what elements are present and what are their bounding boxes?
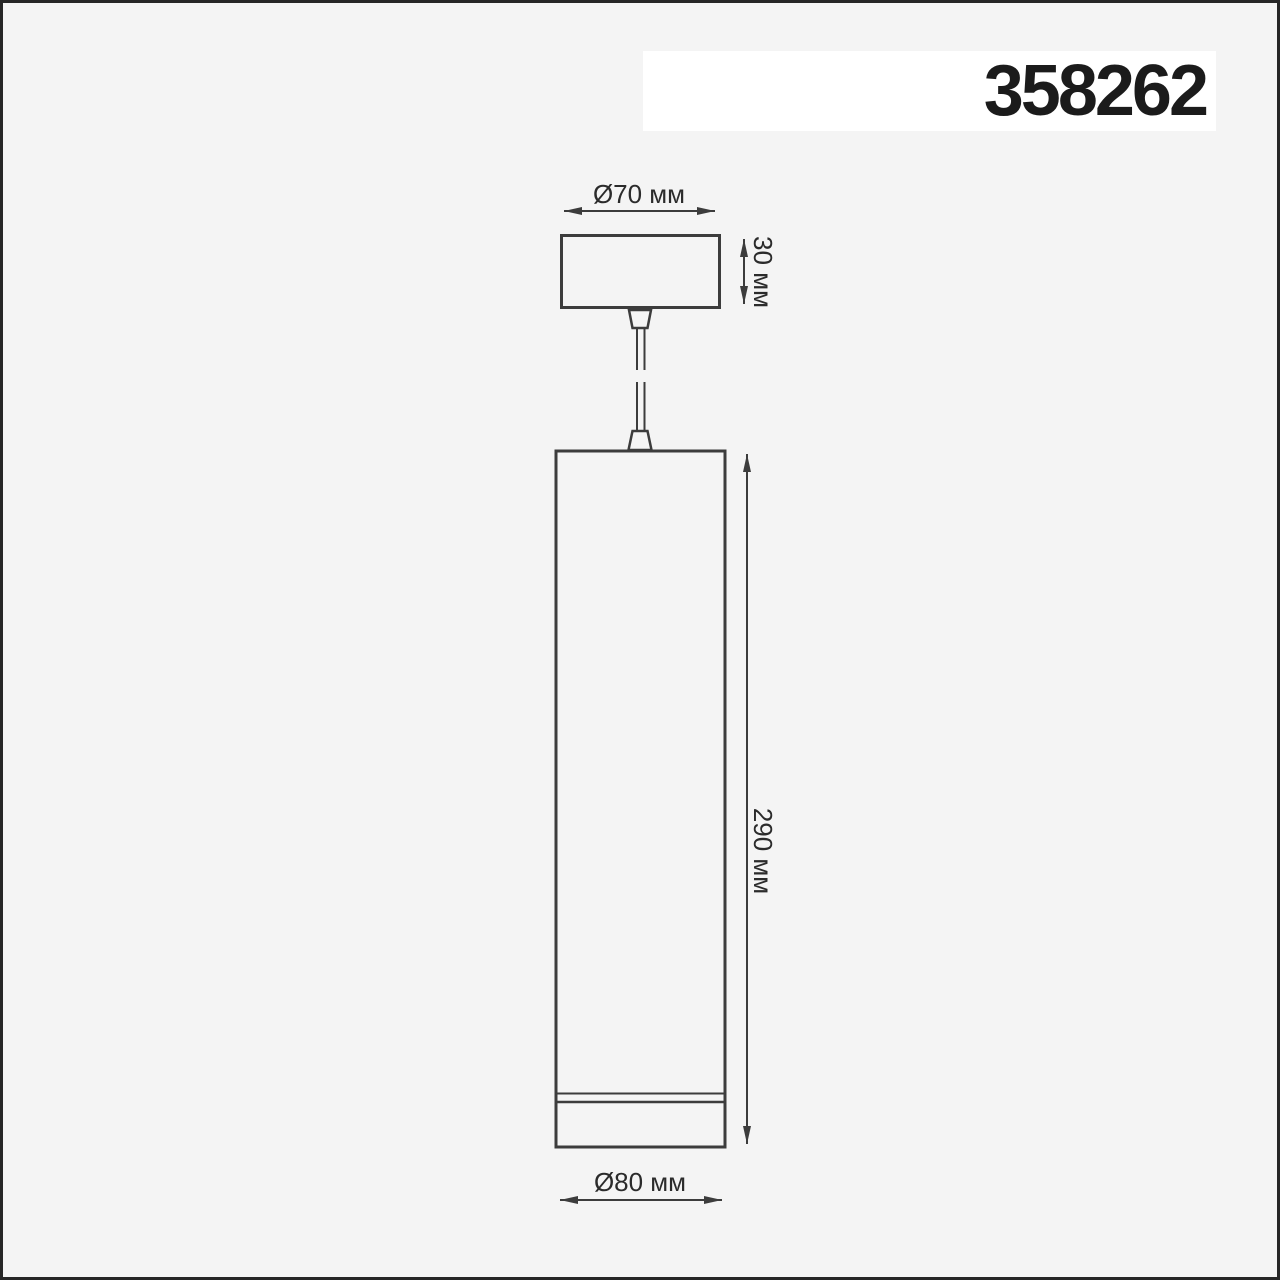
dim-label-canopy-height: 30 мм bbox=[748, 197, 778, 347]
cable-connector-bottom bbox=[629, 431, 652, 450]
dim-label-body-height: 290 мм bbox=[748, 771, 778, 931]
cable-connector-top bbox=[629, 310, 651, 328]
dim-label-canopy-diameter: Ø70 мм bbox=[489, 179, 789, 209]
lamp-body-outline bbox=[556, 451, 725, 1147]
dim-label-body-diameter: Ø80 мм bbox=[490, 1167, 790, 1197]
drawing-canvas: 358262 Ø70 мм 30 мм 290 bbox=[0, 0, 1280, 1280]
canopy-outline bbox=[562, 236, 720, 308]
